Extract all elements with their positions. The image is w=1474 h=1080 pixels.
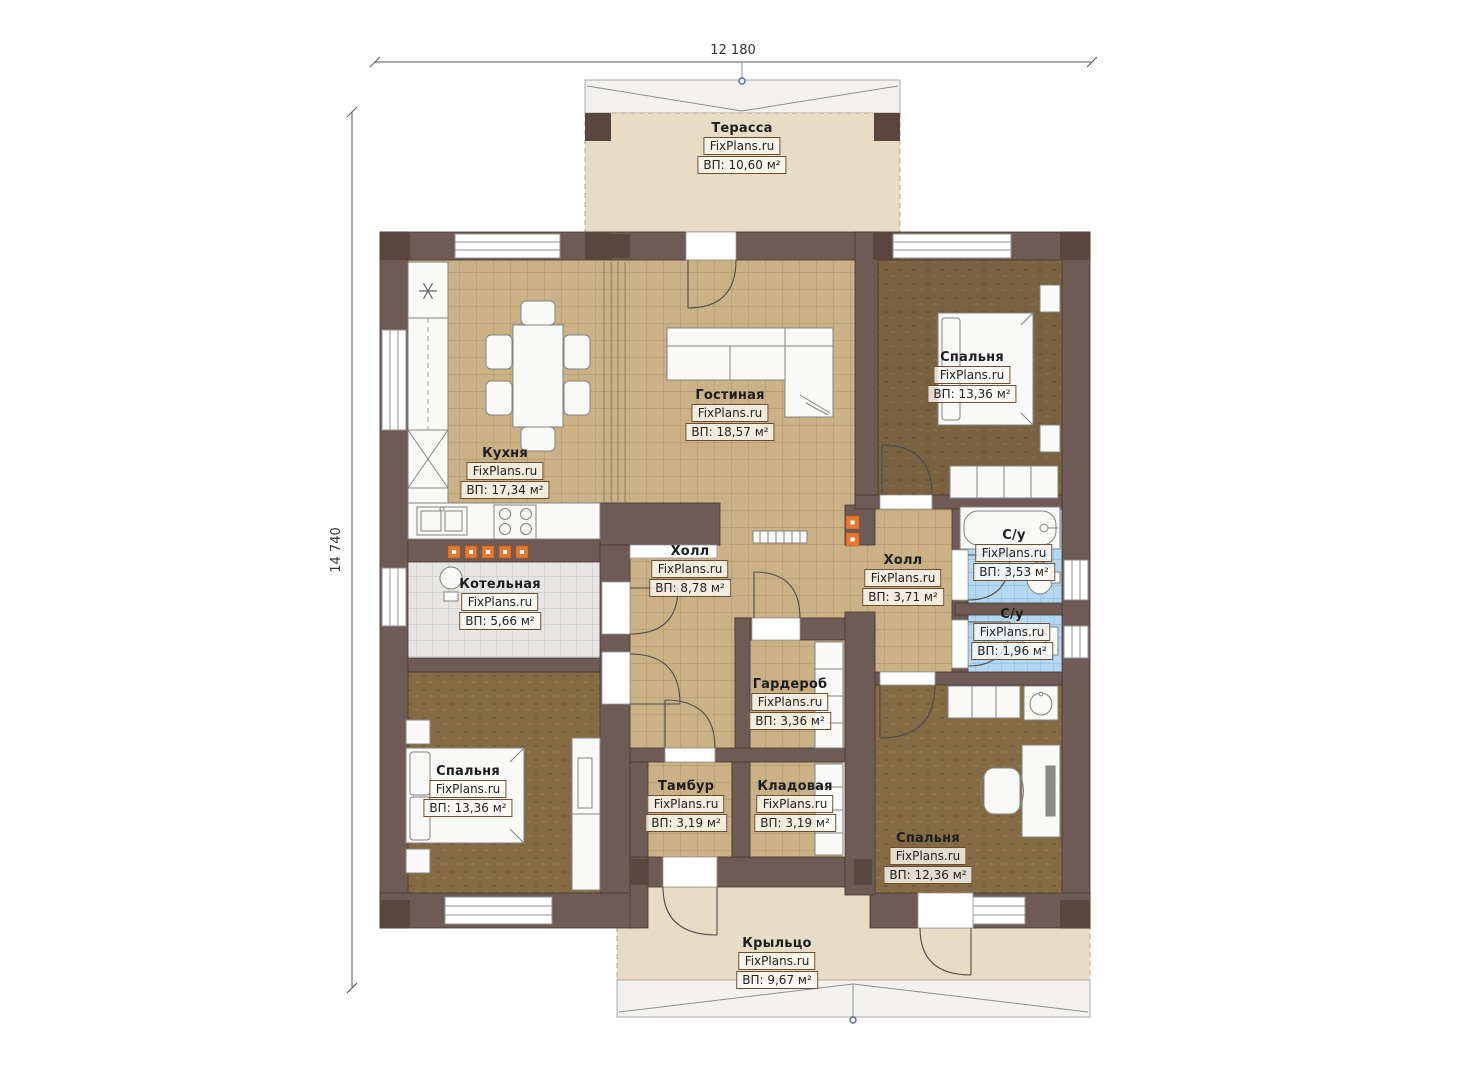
window-bedroom2-bottom (445, 897, 552, 924)
opening-vestibule-door (665, 748, 715, 762)
roof-peak-marker (739, 78, 745, 84)
nightstand (406, 849, 430, 873)
window-kitchen-left (382, 330, 406, 430)
watermark: FixPlans.ru (430, 780, 507, 798)
room-name: Кухня (482, 446, 528, 461)
wall-storage-bedroom3 (845, 612, 875, 895)
room-label-boiler-room: Котельная FixPlans.ru ВП: 5,66 м² (459, 577, 541, 630)
wardrobe-bedroom3 (948, 686, 1020, 718)
watermark: FixPlans.ru (974, 623, 1051, 641)
opening-bathroom1-door (952, 550, 968, 600)
kitchen-counter-left (408, 262, 448, 503)
room-name: Крыльцо (742, 936, 811, 951)
radiator-markers-kitchen (448, 546, 528, 558)
room-name: С/у (1002, 528, 1025, 543)
room-label-hall-main: Холл FixPlans.ru ВП: 8,78 м² (649, 544, 731, 597)
window-bathroom1-right (1064, 560, 1088, 600)
window-bathroom2-right (1064, 626, 1088, 658)
nightstand (1040, 285, 1060, 312)
chair (564, 381, 590, 415)
nightstand (1040, 425, 1060, 452)
dimension-height: 14 740 (329, 527, 344, 573)
opening-entry-door (663, 857, 717, 887)
room-name: Холл (671, 544, 710, 559)
room-name: Гостиная (695, 388, 764, 403)
watermark: FixPlans.ru (865, 569, 942, 587)
room-name: Холл (884, 553, 923, 568)
watermark: FixPlans.ru (739, 952, 816, 970)
watermark: FixPlans.ru (752, 693, 829, 711)
chair (564, 335, 590, 369)
room-area: ВП: 3,53 м² (973, 563, 1055, 581)
watermark: FixPlans.ru (890, 847, 967, 865)
room-label-hall-small: Холл FixPlans.ru ВП: 3,71 м² (862, 553, 944, 606)
opening-bedroom3-door (880, 672, 935, 685)
watermark: FixPlans.ru (757, 795, 834, 813)
monitor-icon (1046, 766, 1055, 816)
room-name: Гардероб (753, 677, 828, 692)
wall-living-hall (600, 503, 720, 545)
opening-boiler-door (602, 582, 630, 634)
opening-bathroom2-door (952, 620, 968, 668)
wardrobe-bedroom2 (572, 738, 600, 890)
chair (521, 301, 555, 325)
wall-wardrobe-left (735, 618, 750, 762)
washing-machine-icon (1024, 686, 1058, 720)
room-area: ВП: 17,34 м² (460, 481, 549, 499)
room-name: Терасса (711, 121, 772, 136)
opening-porch-door (918, 893, 973, 928)
room-area: ВП: 5,66 м² (459, 612, 541, 630)
watermark: FixPlans.ru (692, 404, 769, 422)
room-label-kitchen: Кухня FixPlans.ru ВП: 17,34 м² (460, 446, 549, 499)
wall-bedroom1-left (855, 232, 878, 507)
wardrobe-bedroom1 (950, 466, 1058, 498)
window-kitchen-top (455, 234, 560, 258)
room-area: ВП: 13,36 м² (423, 799, 512, 817)
room-area: ВП: 9,67 м² (736, 971, 818, 989)
kitchen-sink (417, 507, 467, 535)
opening-bedroom2-door (602, 652, 630, 704)
room-area: ВП: 10,60 м² (697, 156, 786, 174)
watermark: FixPlans.ru (976, 544, 1053, 562)
room-name: Спальня (940, 350, 1004, 365)
chair (486, 335, 512, 369)
room-label-wardrobe-room: Гардероб FixPlans.ru ВП: 3,36 м² (749, 677, 831, 730)
room-area: ВП: 1,96 м² (971, 642, 1053, 660)
room-label-bedroom-2: Спальня FixPlans.ru ВП: 13,36 м² (423, 764, 512, 817)
desk (1022, 745, 1060, 837)
room-area: ВП: 3,19 м² (645, 814, 727, 832)
room-label-bathroom-1: С/у FixPlans.ru ВП: 3,53 м² (973, 528, 1055, 581)
room-label-bathroom-2: С/у FixPlans.ru ВП: 1,96 м² (971, 607, 1053, 660)
stove-icon (494, 505, 536, 539)
room-label-bedroom-3: Спальня FixPlans.ru ВП: 12,36 м² (883, 831, 972, 884)
room-label-vestibule: Тамбур FixPlans.ru ВП: 3,19 м² (645, 779, 727, 832)
room-name: С/у (1000, 607, 1023, 622)
room-area: ВП: 3,36 м² (749, 712, 831, 730)
opening-terrace-door (686, 232, 736, 260)
room-area: ВП: 18,57 м² (685, 423, 774, 441)
room-area: ВП: 8,78 м² (649, 579, 731, 597)
watermark: FixPlans.ru (704, 137, 781, 155)
watermark: FixPlans.ru (648, 795, 725, 813)
wall-boiler-bedroom2 (408, 658, 600, 672)
window-bedroom3-bottom (973, 897, 1025, 924)
kitchen-counter-bottom (408, 503, 600, 539)
watermark: FixPlans.ru (934, 366, 1011, 384)
window-bedroom1-top (893, 234, 1011, 258)
room-area: ВП: 13,36 м² (927, 385, 1016, 403)
opening-wardrobe-door (752, 618, 800, 640)
terrace-pillar-right (874, 113, 900, 141)
terrace-roof (585, 80, 900, 113)
office-chair (981, 768, 1024, 814)
room-name: Спальня (896, 831, 960, 846)
opening-bedroom1-door (880, 495, 932, 509)
wall-vestibule-storage (732, 762, 750, 857)
room-label-terrace: Терасса FixPlans.ru ВП: 10,60 м² (697, 121, 786, 174)
room-area: ВП: 3,19 м² (754, 814, 836, 832)
room-area: ВП: 3,71 м² (862, 588, 944, 606)
watermark: FixPlans.ru (652, 560, 729, 578)
dimension-width: 12 180 (710, 43, 756, 58)
window-boiler-left (382, 568, 406, 626)
room-label-porch: Крыльцо FixPlans.ru ВП: 9,67 м² (736, 936, 818, 989)
room-name: Котельная (459, 577, 541, 592)
watermark: FixPlans.ru (462, 593, 539, 611)
watermark: FixPlans.ru (467, 462, 544, 480)
room-name: Кладовая (757, 779, 832, 794)
porch-roof-marker (850, 1017, 856, 1023)
room-label-bedroom-1: Спальня FixPlans.ru ВП: 13,36 м² (927, 350, 1016, 403)
nightstand (406, 720, 430, 744)
chair (486, 381, 512, 415)
room-area: ВП: 12,36 м² (883, 866, 972, 884)
radiator (753, 531, 807, 543)
floor-plan-page: 12 180 14 740 Терасса FixPlans.ru ВП: 10… (0, 0, 1474, 1080)
room-label-living-room: Гостиная FixPlans.ru ВП: 18,57 м² (685, 388, 774, 441)
room-label-storage: Кладовая FixPlans.ru ВП: 3,19 м² (754, 779, 836, 832)
room-name: Спальня (436, 764, 500, 779)
terrace-pillar-left (585, 113, 611, 141)
room-name: Тамбур (658, 779, 714, 794)
